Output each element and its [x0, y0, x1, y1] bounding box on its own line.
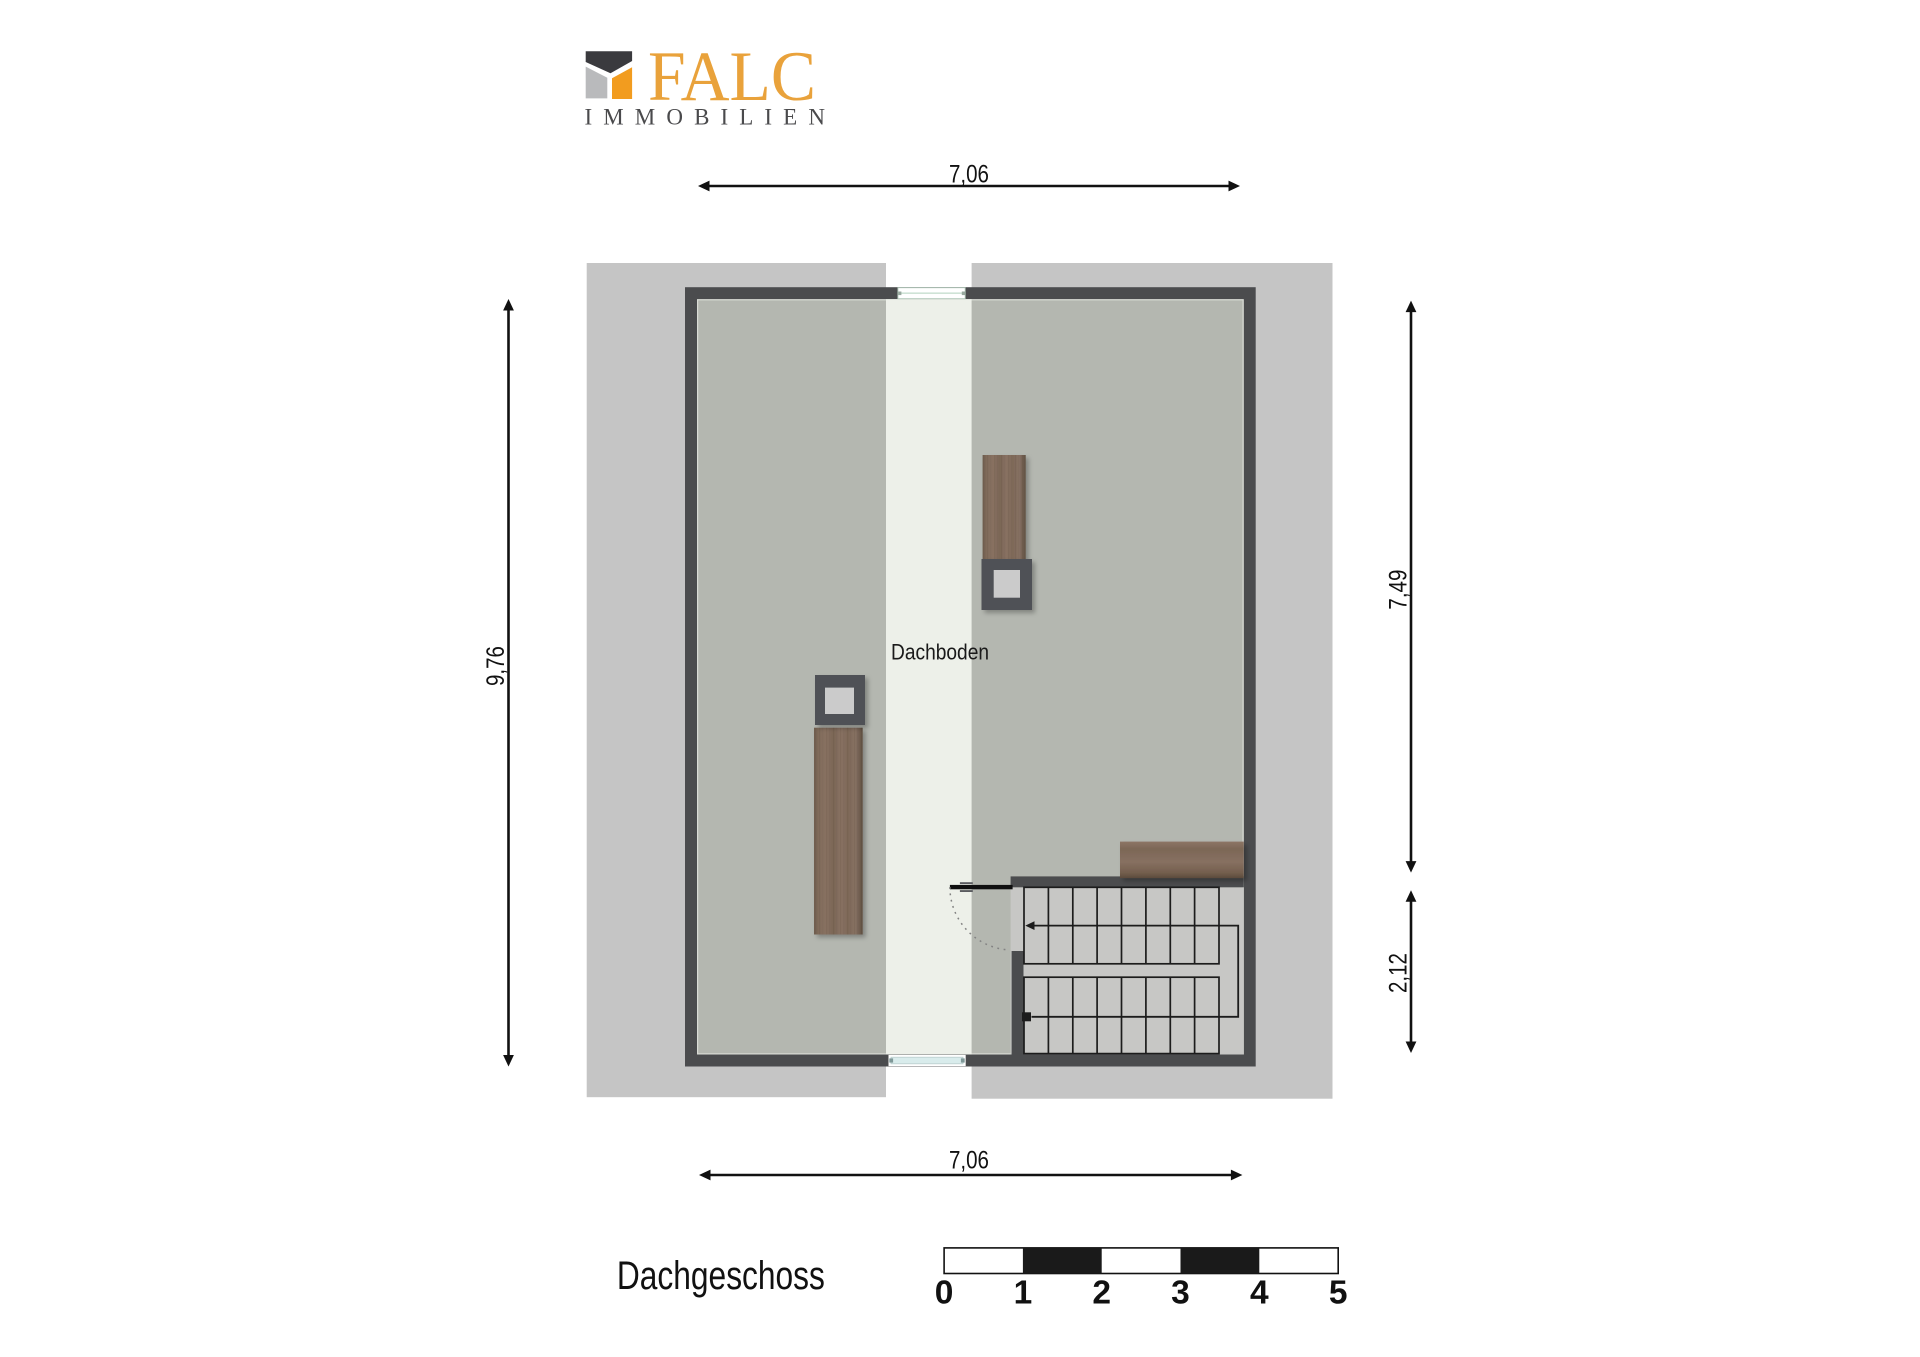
svg-text:1: 1: [1014, 1274, 1033, 1311]
svg-text:2,12: 2,12: [1385, 953, 1413, 993]
svg-text:7,49: 7,49: [1385, 570, 1413, 610]
svg-text:0: 0: [935, 1274, 954, 1311]
svg-text:5: 5: [1329, 1274, 1348, 1311]
svg-text:IMMOBILIEN: IMMOBILIEN: [585, 105, 837, 130]
svg-text:Dachgeschoss: Dachgeschoss: [617, 1254, 825, 1298]
svg-text:Dachboden: Dachboden: [891, 640, 989, 665]
svg-text:4: 4: [1250, 1274, 1269, 1311]
svg-text:2: 2: [1092, 1274, 1111, 1311]
svg-text:3: 3: [1171, 1274, 1190, 1311]
svg-text:7,06: 7,06: [949, 161, 989, 189]
svg-text:7,06: 7,06: [949, 1147, 989, 1175]
svg-text:9,76: 9,76: [482, 646, 510, 686]
